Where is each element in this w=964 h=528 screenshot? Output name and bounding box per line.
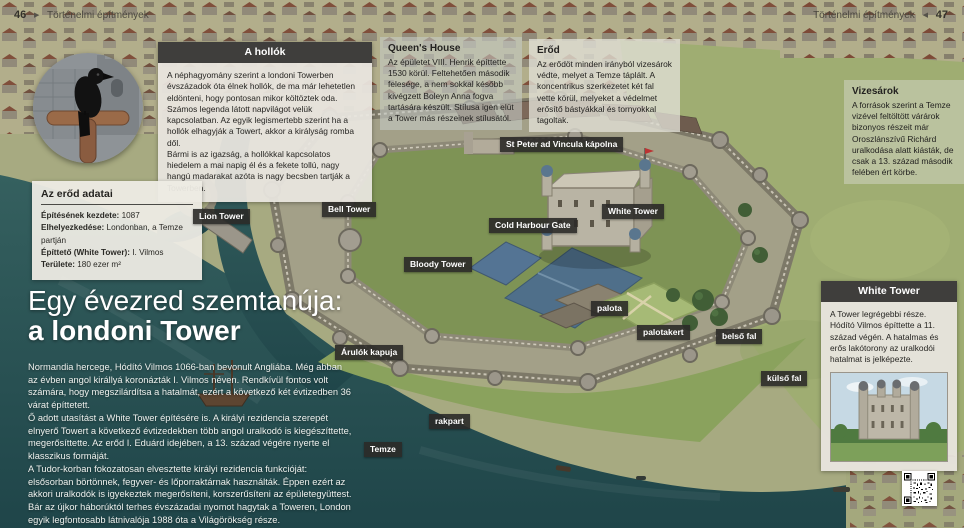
callout-queens-house-title: Queen's House <box>388 43 514 54</box>
map-label-outer-wall: külső fal <box>761 371 807 386</box>
fact-box: Az erőd adatai Építésének kezdete: 1087 … <box>32 181 202 280</box>
fact-label: Építésének kezdete: <box>41 211 119 220</box>
callout-ravens-title: A hollók <box>158 42 372 63</box>
page-title-line2: a londoni Tower <box>28 316 342 346</box>
callout-fort: Erőd Az erődöt minden irányból vizesárok… <box>529 39 680 132</box>
callout-moat-title: Vizesárok <box>852 86 964 97</box>
map-label-inner-wall: belső fal <box>716 329 762 344</box>
page-title-line1: Egy évezred szemtanúja: <box>28 286 342 316</box>
map-label-cold-harbour-gate: Cold Harbour Gate <box>489 218 577 233</box>
callout-white-tower-paragraph: A Tower legrégebbi része. Hódító Vilmos … <box>830 309 948 365</box>
fact-row: Építésének kezdete: 1087 <box>41 210 193 222</box>
section-title-left: Történelmi építmények <box>47 10 149 21</box>
callout-white-tower-title: White Tower <box>821 281 957 302</box>
intro-paragraph: Bár az újkor háborúktól terhes évszázada… <box>28 501 352 526</box>
page-number-right: 47 <box>936 9 948 21</box>
intro-text: Normandia hercege, Hódító Vilmos 1066-ba… <box>28 361 352 527</box>
arrow-left-icon: ◀ <box>923 12 928 19</box>
fact-label: Területe: <box>41 260 75 269</box>
arrow-right-icon: ▶ <box>34 12 39 19</box>
intro-paragraph: Normandia hercege, Hódító Vilmos 1066-ba… <box>28 361 352 412</box>
page-title: Egy évezred szemtanúja: a londoni Tower <box>28 286 342 345</box>
fact-value: I. Vilmos <box>132 248 163 257</box>
callout-white-tower: White Tower A Tower legrégebbi része. Hó… <box>821 281 957 471</box>
map-label-bloody-tower: Bloody Tower <box>404 257 472 272</box>
magazine-spread: 46 ▶ Történelmi építmények Történelmi ép… <box>0 0 964 528</box>
map-label-palace: palota <box>591 301 628 316</box>
map-label-st-peter-chapel: St Peter ad Vincula kápolna <box>500 137 623 152</box>
fact-row: Építtető (White Tower): I. Vilmos <box>41 247 193 259</box>
map-label-traitors-gate: Árulók kapuja <box>335 345 403 360</box>
section-title-right: Történelmi építmények <box>813 10 915 21</box>
fact-row: Területe: 180 ezer m² <box>41 259 193 271</box>
intro-paragraph: Ő adott utasítást a White Tower építésér… <box>28 412 352 463</box>
callout-ravens-paragraph: Számos legenda látott napvilágot velük k… <box>167 104 363 149</box>
map-label-bell-tower: Bell Tower <box>322 202 376 217</box>
fact-label: Elhelyezkedése: <box>41 223 104 232</box>
map-label-white-tower: White Tower <box>602 204 664 219</box>
callout-queens-house: Queen's House Az épületet VIII. Henrik é… <box>380 37 522 130</box>
map-label-wharf: rakpart <box>429 414 470 429</box>
callout-queens-house-body: Az épületet VIII. Henrik építtette 1530 … <box>388 57 514 124</box>
callout-moat: Vizesárok A források szerint a Temze viz… <box>844 80 964 184</box>
callout-fort-title: Erőd <box>537 45 672 56</box>
white-tower-photo <box>830 372 948 462</box>
page-header-left: 46 ▶ Történelmi építmények <box>14 9 149 21</box>
map-label-thames: Temze <box>364 442 402 457</box>
fact-label: Építtető (White Tower): <box>41 248 130 257</box>
callout-ravens: A hollók A néphagyomány szerint a london… <box>158 42 372 202</box>
callout-fort-body: Az erődöt minden irányból vizesárok védt… <box>537 59 672 126</box>
intro-paragraph: A Tudor-korban fokozatosan elvesztette k… <box>28 463 352 501</box>
fact-value: 1087 <box>122 211 140 220</box>
map-label-palace-garden: palotakert <box>637 325 690 340</box>
callout-moat-body: A források szerint a Temze vizével feltö… <box>852 100 964 178</box>
raven-photo <box>33 53 143 163</box>
callout-ravens-paragraph: A néphagyomány szerint a londoni Towerbe… <box>167 70 363 104</box>
callout-white-tower-body: A Tower legrégebbi része. Hódító Vilmos … <box>821 302 957 471</box>
page-number-left: 46 <box>14 9 26 21</box>
fact-value: 180 ezer m² <box>77 260 121 269</box>
fact-row: Elhelyezkedése: Londonban, a Temze partj… <box>41 222 193 247</box>
map-label-lion-tower: Lion Tower <box>193 209 250 224</box>
fact-box-title: Az erőd adatai <box>41 188 193 205</box>
page-header-right: Történelmi építmények ◀ 47 <box>813 9 948 21</box>
qr-code <box>902 471 937 506</box>
